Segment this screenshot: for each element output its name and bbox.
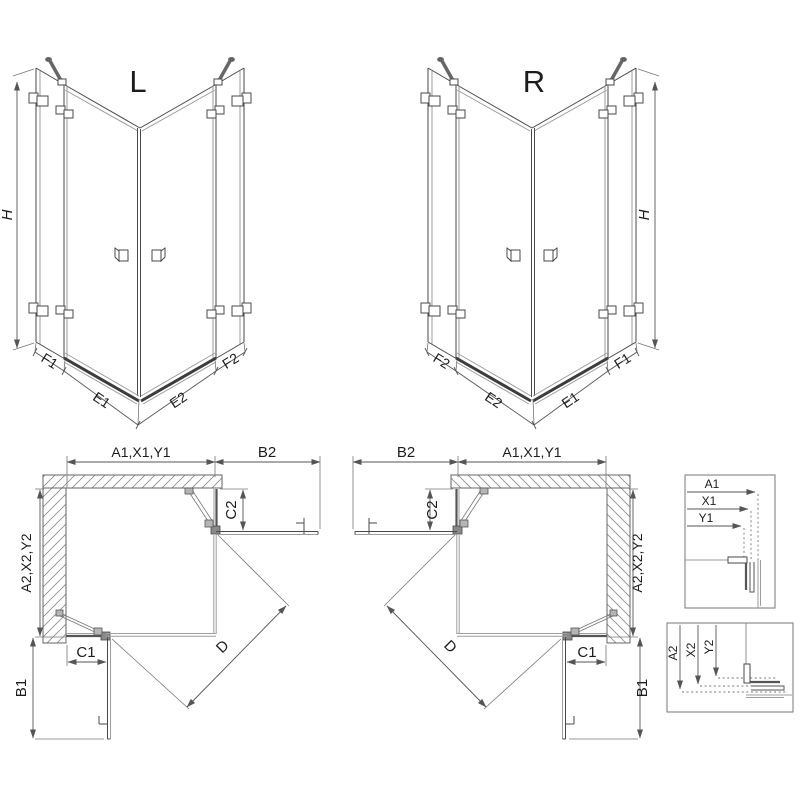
plan-right-diagonal-label: D xyxy=(440,637,460,657)
detail-box-width: A1 X1 Y1 xyxy=(685,475,775,608)
plan-right-b2-label: B2 xyxy=(397,444,415,461)
detail-a1-label: A1 xyxy=(705,477,720,491)
enclosure-3d-geometry-right xyxy=(421,57,659,429)
plan-right-c1-label: C1 xyxy=(577,644,596,661)
plan-left-diagonal-label: D xyxy=(213,637,233,657)
perspective-view-left: L H F1 E1 E2 F2 xyxy=(0,57,251,429)
enclosure-3d-geometry-left xyxy=(13,57,251,429)
plan-left-b2-label: B2 xyxy=(258,444,276,461)
dim-e1-right: E1 xyxy=(559,388,582,411)
plan-geometry-left xyxy=(33,456,320,739)
detail-y1-label: Y1 xyxy=(699,511,714,525)
detail-box-depth: A2 X2 Y2 xyxy=(666,623,793,712)
dim-f2-left: F2 xyxy=(219,350,242,372)
shower-enclosure-drawing: L H F1 E1 E2 F2 R H F2 E2 E1 F1 A1,X1,Y1… xyxy=(0,0,800,800)
plan-view-left: A1,X1,Y1 B2 C2 A2,X2,Y2 C1 B1 D xyxy=(13,444,320,739)
plan-geometry-right xyxy=(353,456,640,739)
plan-left-depth-label: A2,X2,Y2 xyxy=(18,533,34,592)
plan-right-depth-label: A2,X2,Y2 xyxy=(629,533,645,592)
variant-label-right: R xyxy=(523,64,545,99)
detail-x2-label: X2 xyxy=(684,642,698,657)
detail-x1-label: X1 xyxy=(702,494,717,508)
plan-left-width-label: A1,X1,Y1 xyxy=(111,444,170,460)
plan-right-b1-label: B1 xyxy=(634,679,651,697)
plan-view-right: B2 A1,X1,Y1 C2 A2,X2,Y2 C1 B1 D xyxy=(353,444,651,739)
plan-right-width-label: A1,X1,Y1 xyxy=(502,444,561,460)
dim-f1-left: F1 xyxy=(38,350,61,372)
dim-f1-right: F1 xyxy=(611,350,634,372)
height-dimension-label-left: H xyxy=(0,209,16,220)
variant-label-left: L xyxy=(129,64,146,99)
plan-left-c1-label: C1 xyxy=(76,644,95,661)
plan-left-b1-label: B1 xyxy=(13,679,30,697)
dim-e1-left: E1 xyxy=(90,388,113,411)
plan-left-c2-label: C2 xyxy=(223,500,240,519)
height-dimension-label-right: H xyxy=(636,209,653,220)
plan-right-c2-label: C2 xyxy=(424,500,441,519)
detail-a2-label: A2 xyxy=(666,645,680,660)
dim-f2-right: F2 xyxy=(430,350,453,372)
technical-drawing-page: L H F1 E1 E2 F2 R H F2 E2 E1 F1 A1,X1,Y1… xyxy=(0,0,800,800)
detail-y2-label: Y2 xyxy=(702,639,716,654)
perspective-view-right: R H F2 E2 E1 F1 xyxy=(421,57,659,429)
